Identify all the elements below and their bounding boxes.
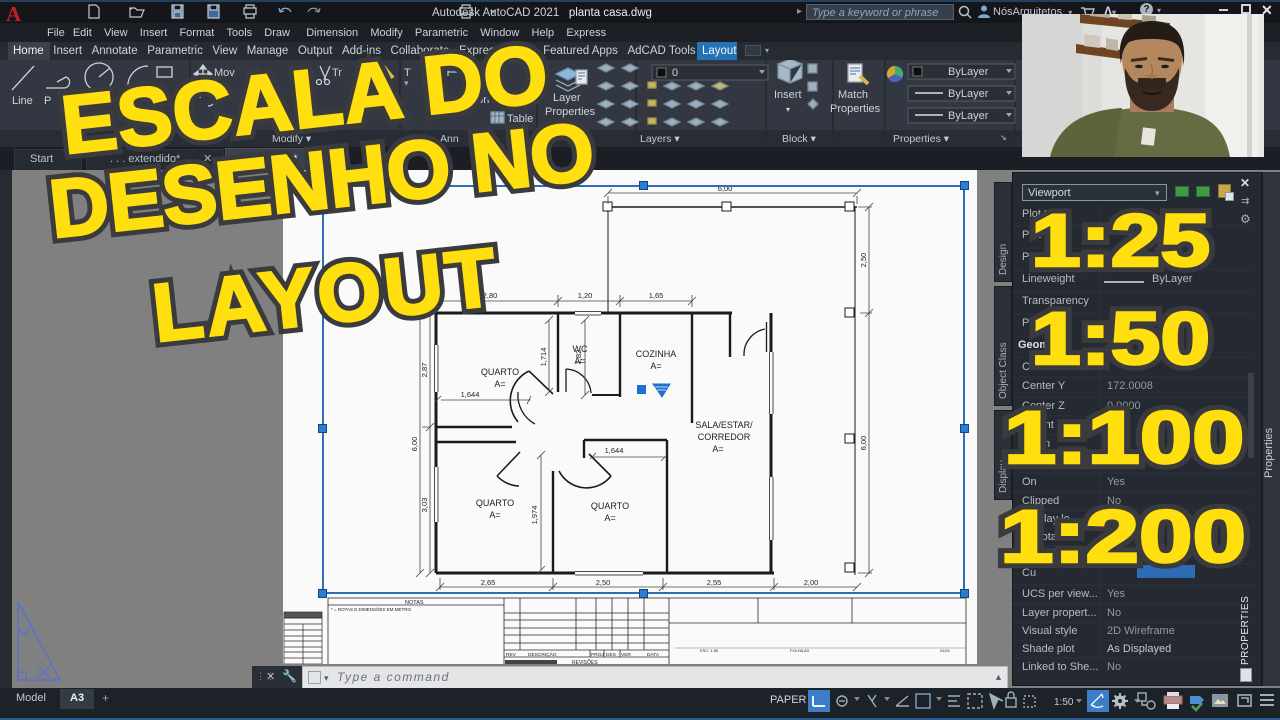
svg-text:ESC. 1:50: ESC. 1:50 — [700, 648, 719, 653]
svg-text:Layer: Layer — [553, 92, 581, 104]
svg-text:Insert: Insert — [774, 89, 802, 101]
svg-text:VER: VER — [621, 652, 631, 658]
svg-text:▾: ▾ — [786, 105, 790, 114]
svg-text:0: 0 — [672, 67, 678, 79]
svg-text:Properties: Properties — [830, 103, 881, 115]
svg-text:1:50: 1:50 — [1054, 697, 1074, 708]
svg-text:REVISÕES: REVISÕES — [572, 659, 598, 664]
svg-text:REV: REV — [506, 652, 517, 658]
svg-text:Line: Line — [12, 95, 33, 107]
svg-text:DESCRIÇÃO: DESCRIÇÃO — [528, 651, 557, 658]
svg-text:* = ROTAS E DIMENSÕES EM METRO: * = ROTAS E DIMENSÕES EM METRO — [331, 606, 412, 612]
svg-text:FOLHA A3: FOLHA A3 — [790, 648, 810, 653]
svg-text:01/01: 01/01 — [940, 648, 951, 653]
svg-text:ByLayer: ByLayer — [948, 66, 989, 78]
svg-text:ByLayer: ByLayer — [948, 110, 989, 122]
svg-text:ByLayer: ByLayer — [948, 88, 989, 100]
svg-text:PROJ: PROJ — [591, 652, 604, 658]
svg-text:P: P — [44, 95, 51, 107]
svg-text:DES: DES — [606, 652, 616, 658]
svg-text:NOTAS: NOTAS — [405, 600, 424, 606]
svg-text:Match: Match — [838, 89, 868, 101]
svg-text:DATA: DATA — [647, 652, 660, 658]
